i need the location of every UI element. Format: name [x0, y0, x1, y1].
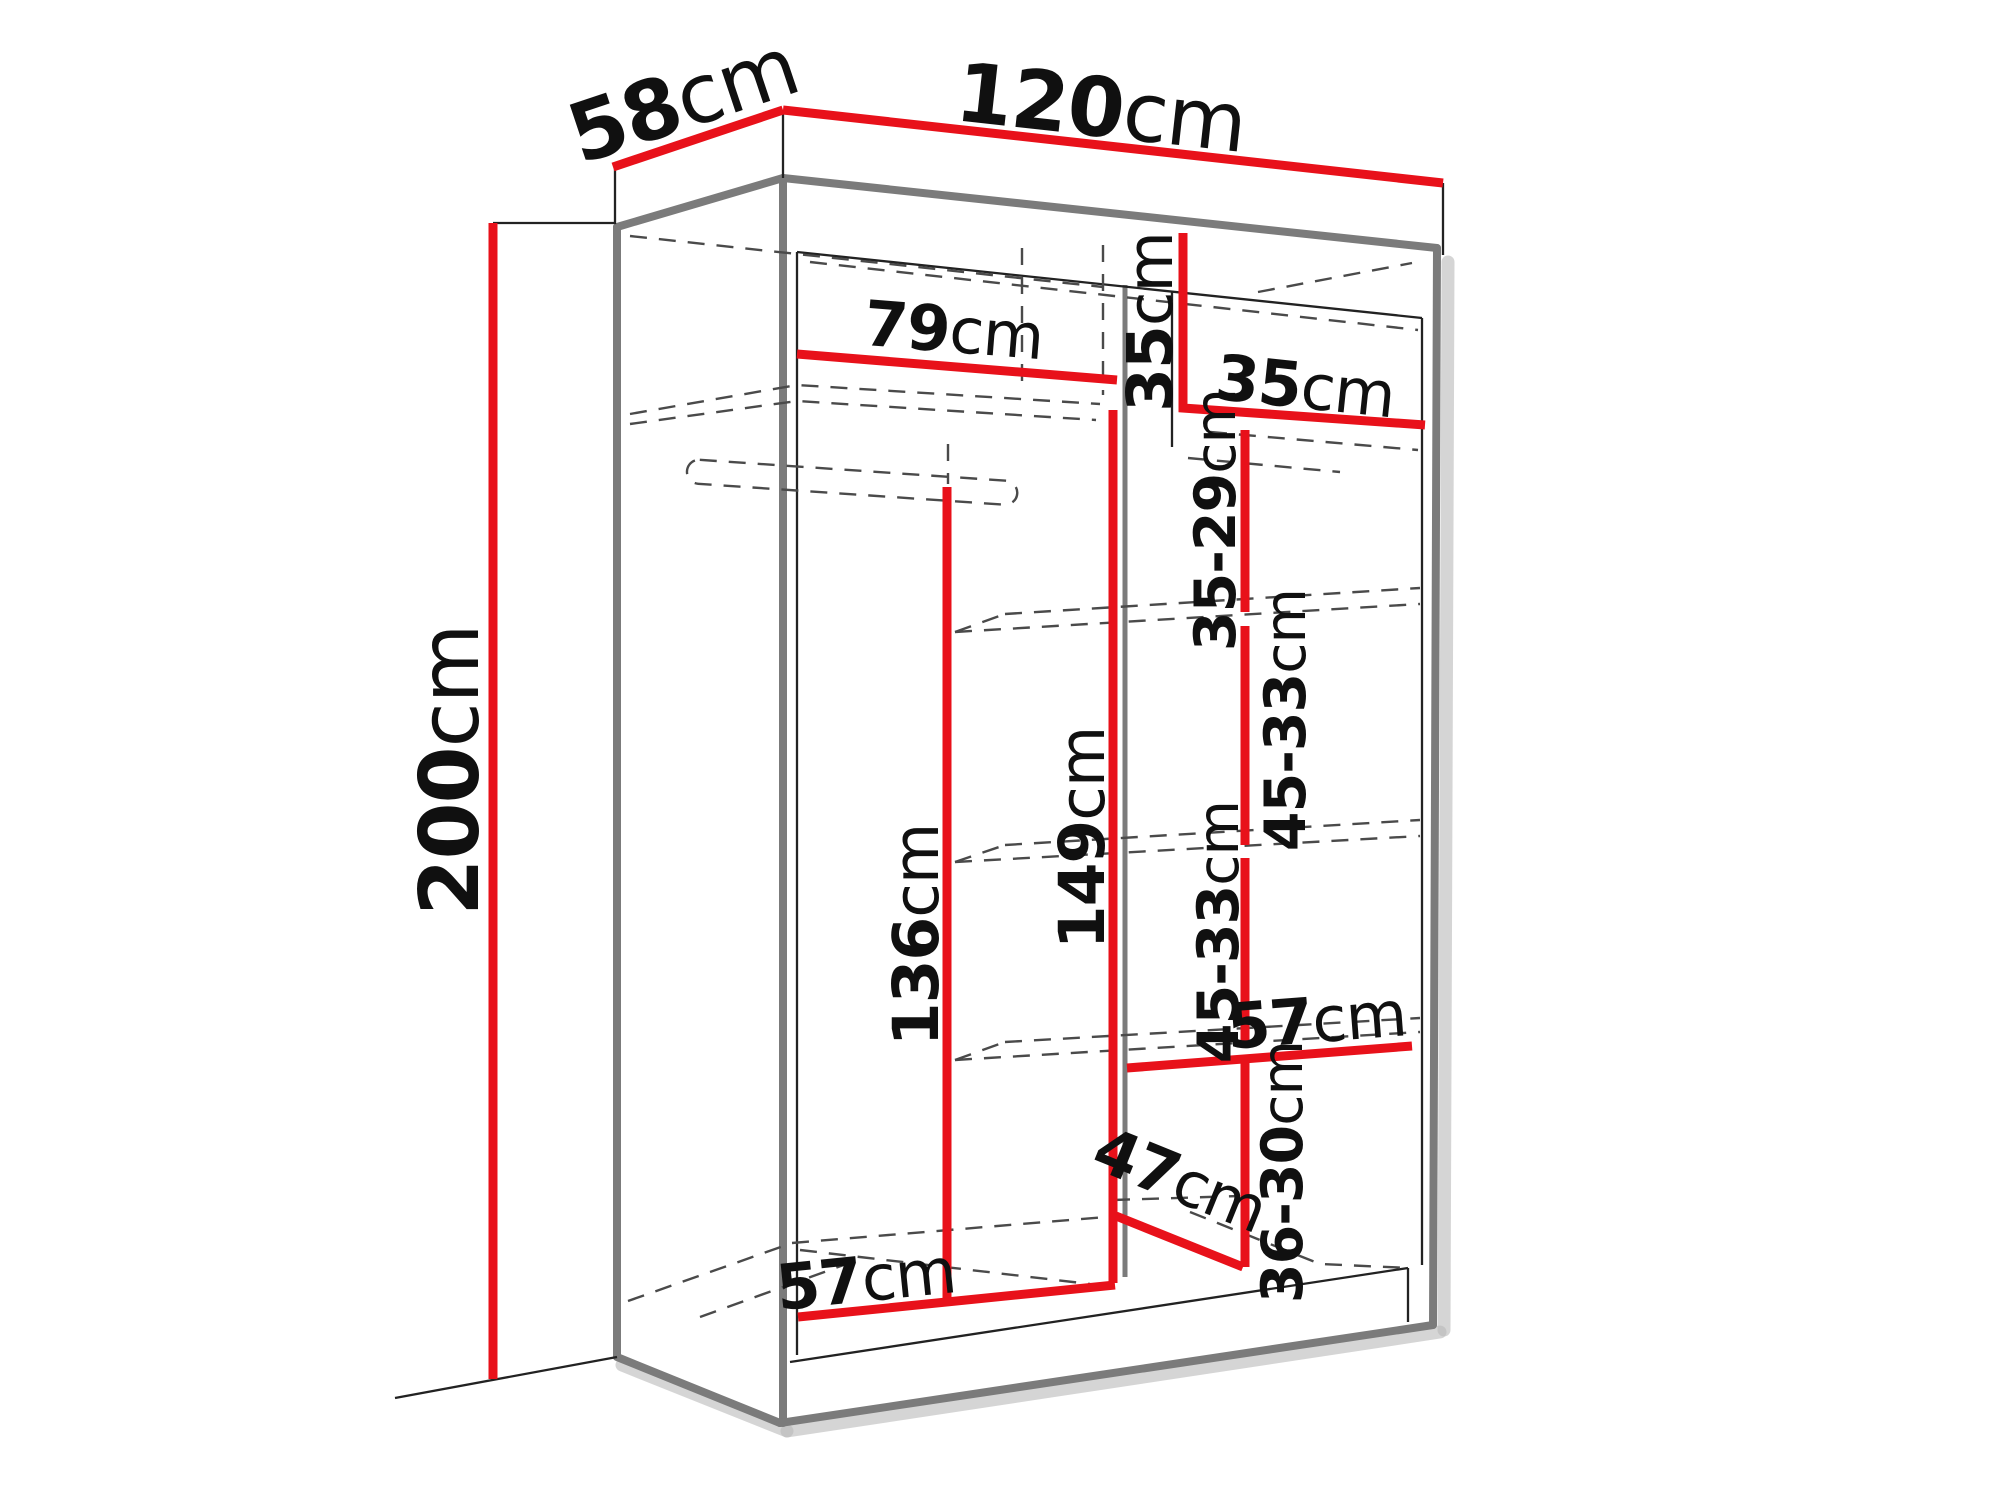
label-top-shelf-width: 79cm: [861, 287, 1046, 374]
label-shelf-gap-upper: 45-33cm: [1253, 589, 1319, 851]
label-interior-width: 57cm: [773, 1234, 959, 1325]
diagram-canvas: 120cm 58cm 200cm 79cm 35cm 35cm 35-29cm …: [0, 0, 2000, 1500]
dimension-labels: 120cm 58cm 200cm 79cm 35cm 35cm 35-29cm …: [403, 19, 1409, 1325]
cabinet-shadow: [622, 262, 1448, 1431]
label-hanging-height: 136cm: [880, 824, 953, 1047]
label-width: 120cm: [951, 45, 1251, 171]
label-depth: 58cm: [557, 19, 810, 184]
label-left-col-height: 149cm: [1046, 727, 1119, 950]
label-top-cubby-height: 35cm: [1114, 232, 1187, 412]
wardrobe-dimension-diagram: 120cm 58cm 200cm 79cm 35cm 35cm 35-29cm …: [0, 0, 2000, 1500]
label-shelf-gap-top: 35-29cm: [1183, 389, 1249, 651]
label-height: 200cm: [403, 624, 498, 915]
clothes-rail: [686, 459, 1018, 505]
